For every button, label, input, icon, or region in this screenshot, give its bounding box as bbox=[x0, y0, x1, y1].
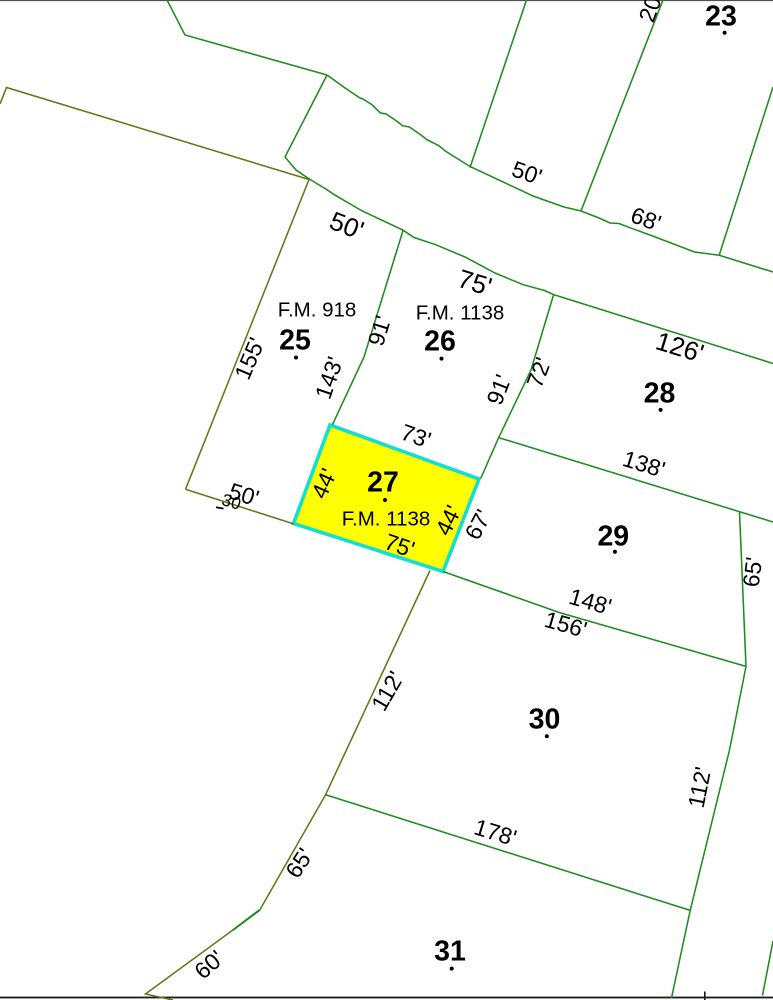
svg-text:F.M. 1138: F.M. 1138 bbox=[416, 302, 505, 325]
svg-text:F.M. 1138: F.M. 1138 bbox=[342, 508, 431, 531]
svg-text:28: 28 bbox=[644, 378, 676, 410]
svg-text:23: 23 bbox=[705, 1, 737, 33]
svg-text:F.M. 918: F.M. 918 bbox=[278, 299, 357, 322]
svg-text:30: 30 bbox=[529, 704, 561, 736]
svg-text:31: 31 bbox=[434, 936, 466, 968]
svg-text:65': 65' bbox=[738, 556, 767, 589]
svg-text:27: 27 bbox=[367, 467, 399, 499]
svg-text:26: 26 bbox=[424, 326, 456, 358]
svg-text:29: 29 bbox=[597, 521, 629, 553]
svg-text:25: 25 bbox=[279, 325, 311, 357]
